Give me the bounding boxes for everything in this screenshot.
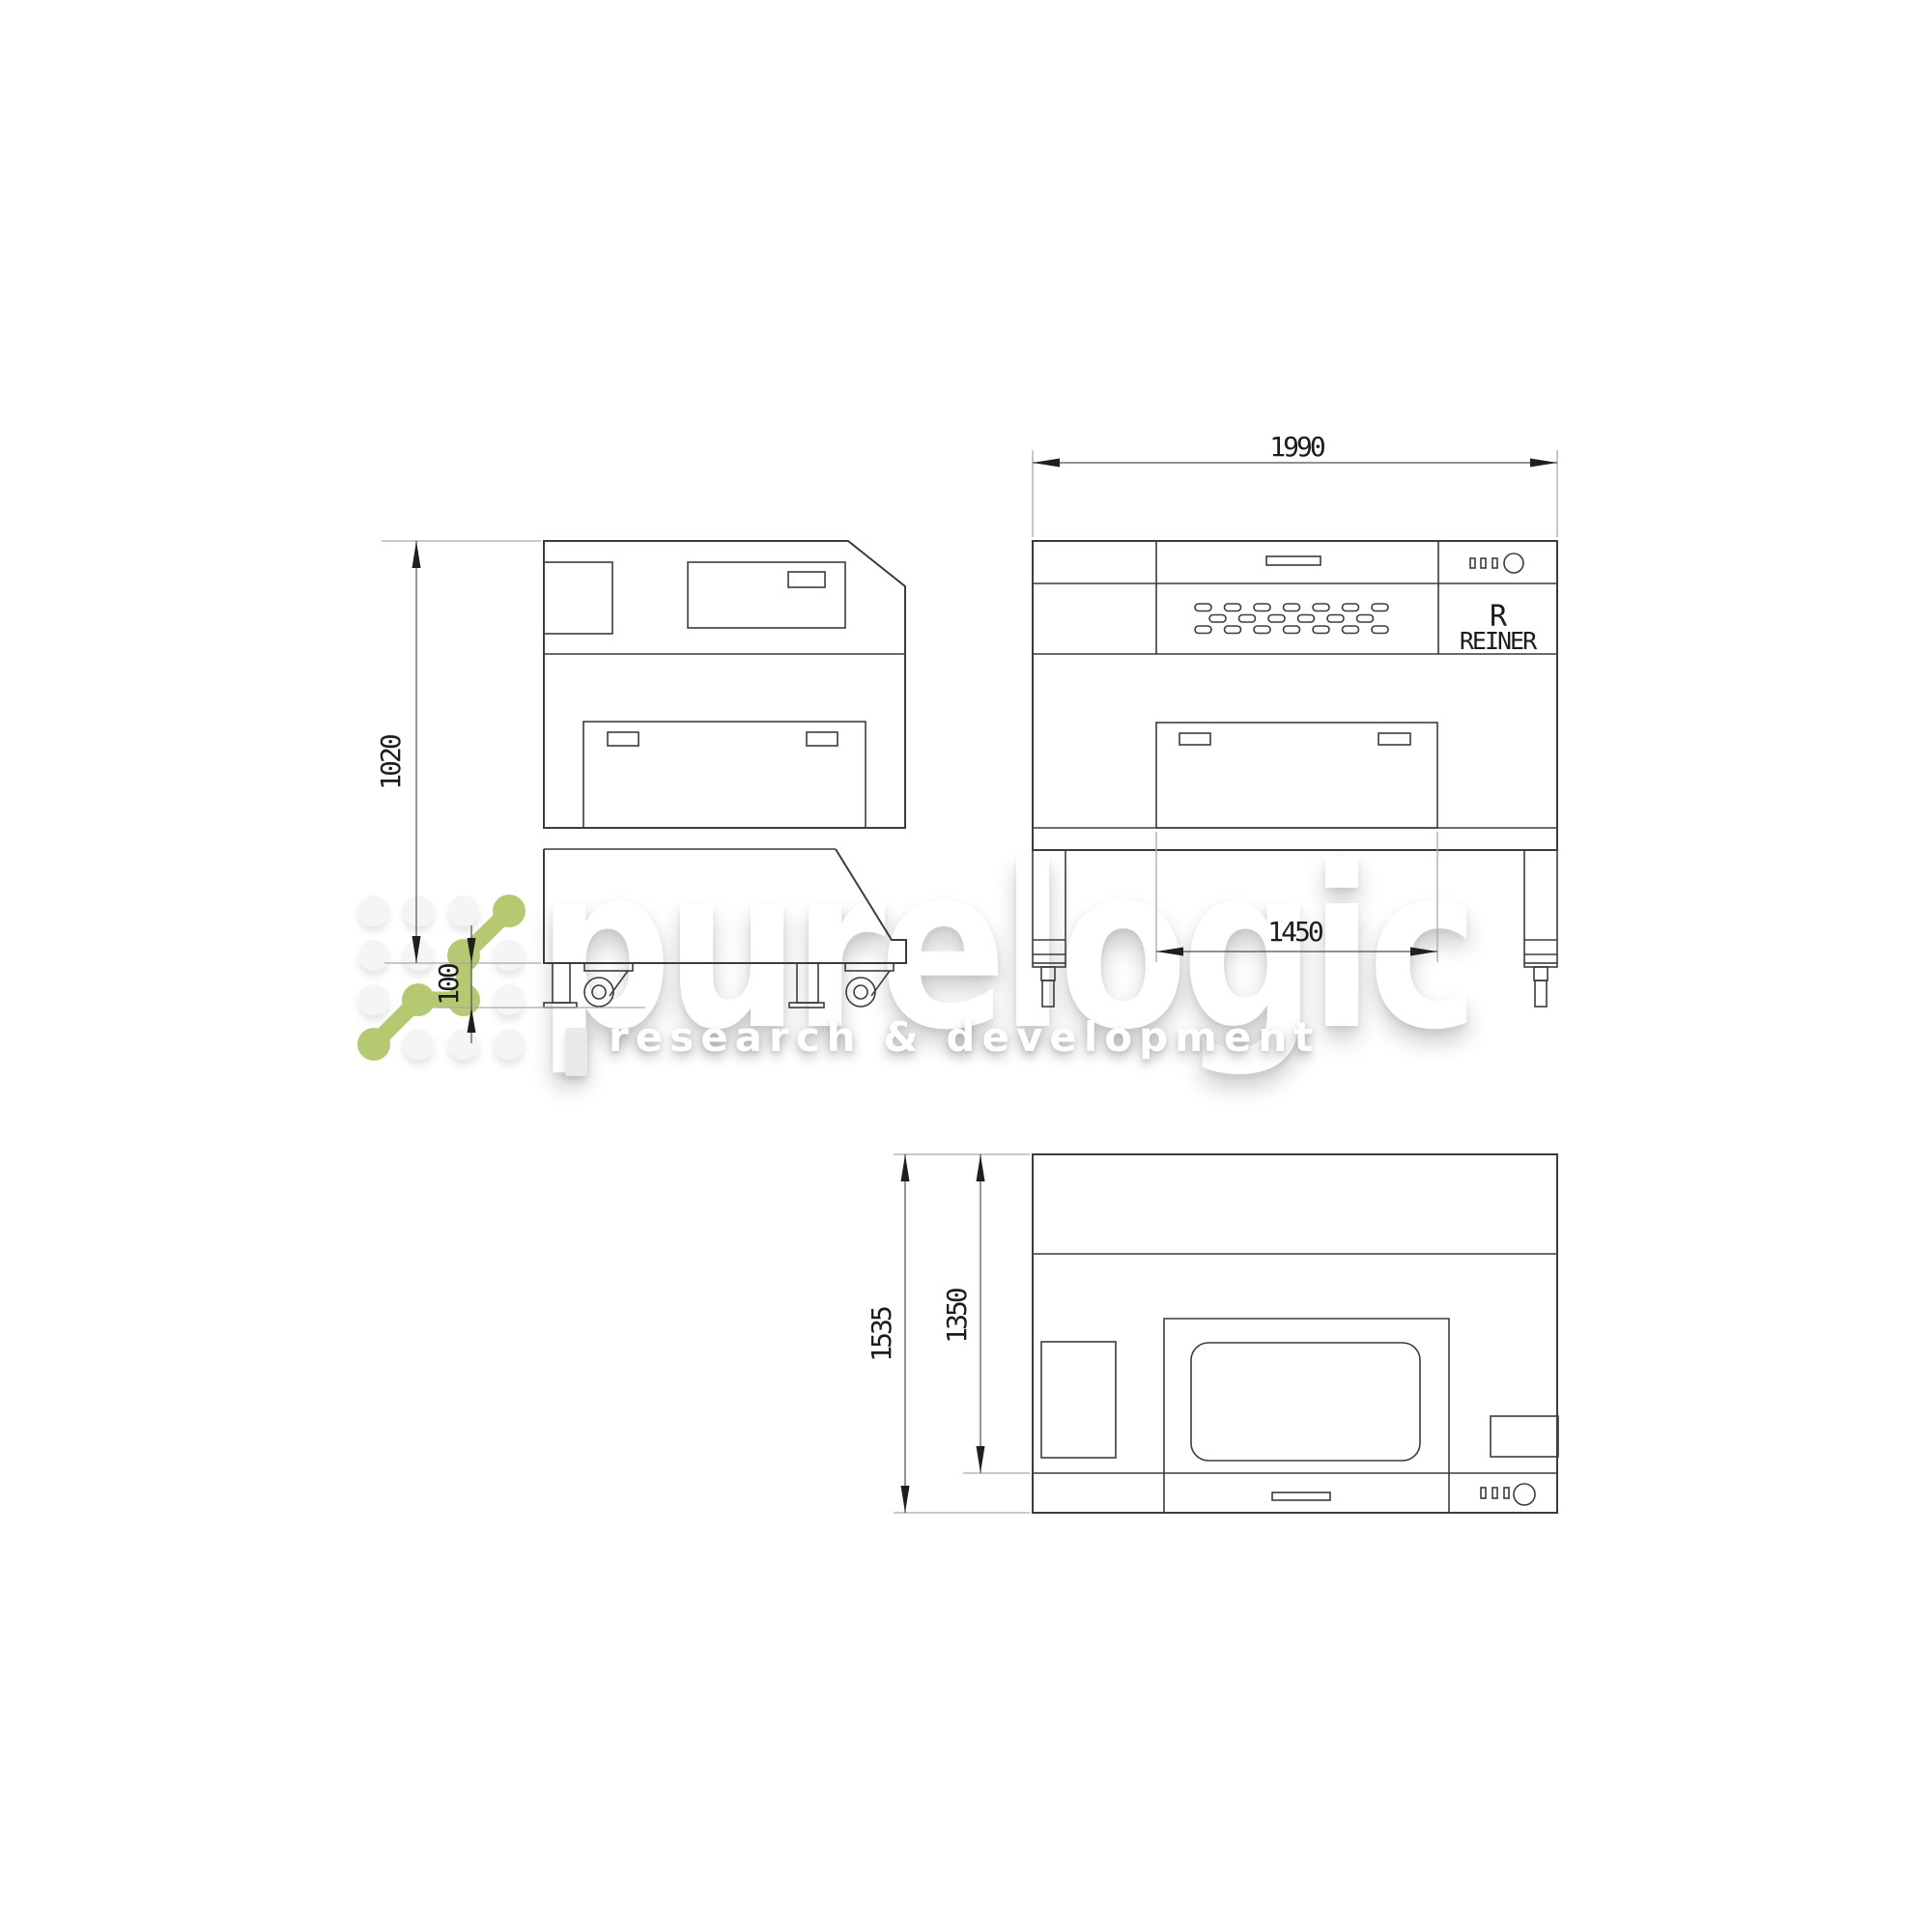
top-side-hatch bbox=[1041, 1342, 1116, 1458]
front-vent-grille bbox=[1195, 604, 1388, 634]
top-control-recess bbox=[1491, 1416, 1558, 1457]
dim-side-clearance: 100 bbox=[433, 925, 476, 1043]
front-door bbox=[1156, 723, 1437, 828]
side-door-handle-left bbox=[608, 732, 639, 746]
front-door-handle-left bbox=[1179, 733, 1210, 745]
top-body-outline bbox=[1033, 1154, 1557, 1513]
front-body-outline bbox=[1033, 541, 1557, 850]
side-caster-front bbox=[845, 963, 894, 1007]
side-body-outline bbox=[544, 541, 905, 828]
side-leveling-foot-front bbox=[789, 963, 824, 1008]
top-viewing-window bbox=[1191, 1343, 1420, 1461]
front-caster-left bbox=[1042, 980, 1054, 1007]
side-stand-outline bbox=[544, 849, 906, 963]
power-button-icon bbox=[1504, 554, 1523, 573]
side-front-door bbox=[583, 722, 866, 828]
top-control-indicators bbox=[1481, 1484, 1535, 1505]
top-lid-handle-slot bbox=[1272, 1492, 1330, 1500]
brand-plate-name: REINER bbox=[1460, 627, 1538, 655]
dim-label: 1990 bbox=[1269, 431, 1325, 463]
machine-orthographic-drawing: R REINER bbox=[0, 0, 1932, 1932]
power-button-icon bbox=[1514, 1484, 1535, 1505]
dim-label: 100 bbox=[433, 963, 465, 1006]
dim-top-depth-body: 1350 bbox=[941, 1154, 985, 1473]
dim-label: 1020 bbox=[375, 734, 407, 790]
side-leveling-foot-rear bbox=[544, 963, 577, 1008]
front-lid-handle-slot bbox=[1266, 556, 1321, 565]
dim-front-leg-span: 1450 bbox=[1156, 916, 1437, 956]
front-leg-left bbox=[1033, 850, 1065, 1007]
front-caster-right bbox=[1535, 980, 1547, 1007]
front-leg-right bbox=[1524, 850, 1557, 1007]
side-caster-rear bbox=[584, 963, 633, 1007]
front-control-indicators bbox=[1470, 554, 1523, 573]
side-rear-panel bbox=[544, 562, 612, 634]
side-door-handle-right bbox=[807, 732, 838, 746]
top-lid-outline bbox=[1164, 1319, 1449, 1513]
dim-side-height: 1020 bbox=[375, 541, 421, 963]
dim-label: 1535 bbox=[866, 1307, 897, 1362]
front-door-handle-right bbox=[1378, 733, 1410, 745]
dim-front-width: 1990 bbox=[1033, 431, 1557, 468]
drawing-sheet: purelogic research & development bbox=[0, 0, 1932, 1932]
side-top-window-latch bbox=[788, 572, 825, 587]
dim-top-depth-overall: 1535 bbox=[866, 1154, 910, 1513]
top-view bbox=[1033, 1154, 1558, 1513]
dim-label: 1350 bbox=[941, 1288, 973, 1344]
dim-label: 1450 bbox=[1267, 916, 1323, 948]
side-view bbox=[544, 541, 906, 1008]
